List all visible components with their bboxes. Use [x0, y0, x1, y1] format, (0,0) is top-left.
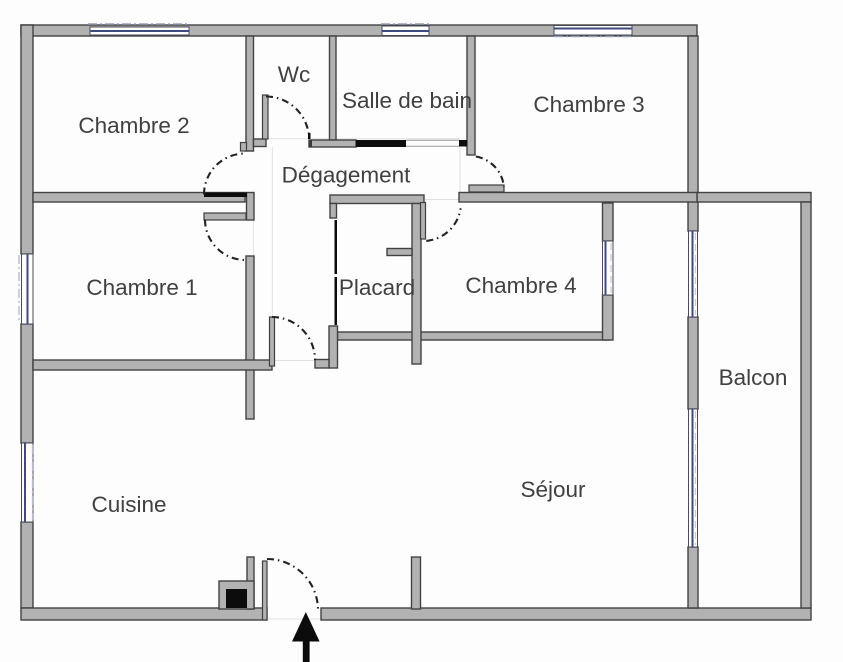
svg-text:Dégagement: Dégagement — [282, 163, 412, 188]
svg-text:Chambre 2: Chambre 2 — [78, 113, 189, 138]
svg-text:Wc: Wc — [278, 62, 311, 87]
svg-text:Chambre 4: Chambre 4 — [465, 273, 576, 298]
svg-text:Placard: Placard — [339, 275, 415, 300]
svg-text:Séjour: Séjour — [520, 477, 586, 502]
svg-text:Chambre 3: Chambre 3 — [533, 92, 644, 117]
svg-text:Chambre 1: Chambre 1 — [86, 275, 197, 300]
svg-text:Balcon: Balcon — [719, 365, 788, 390]
svg-text:Cuisine: Cuisine — [91, 492, 166, 517]
svg-text:Salle de bain: Salle de bain — [342, 88, 472, 113]
